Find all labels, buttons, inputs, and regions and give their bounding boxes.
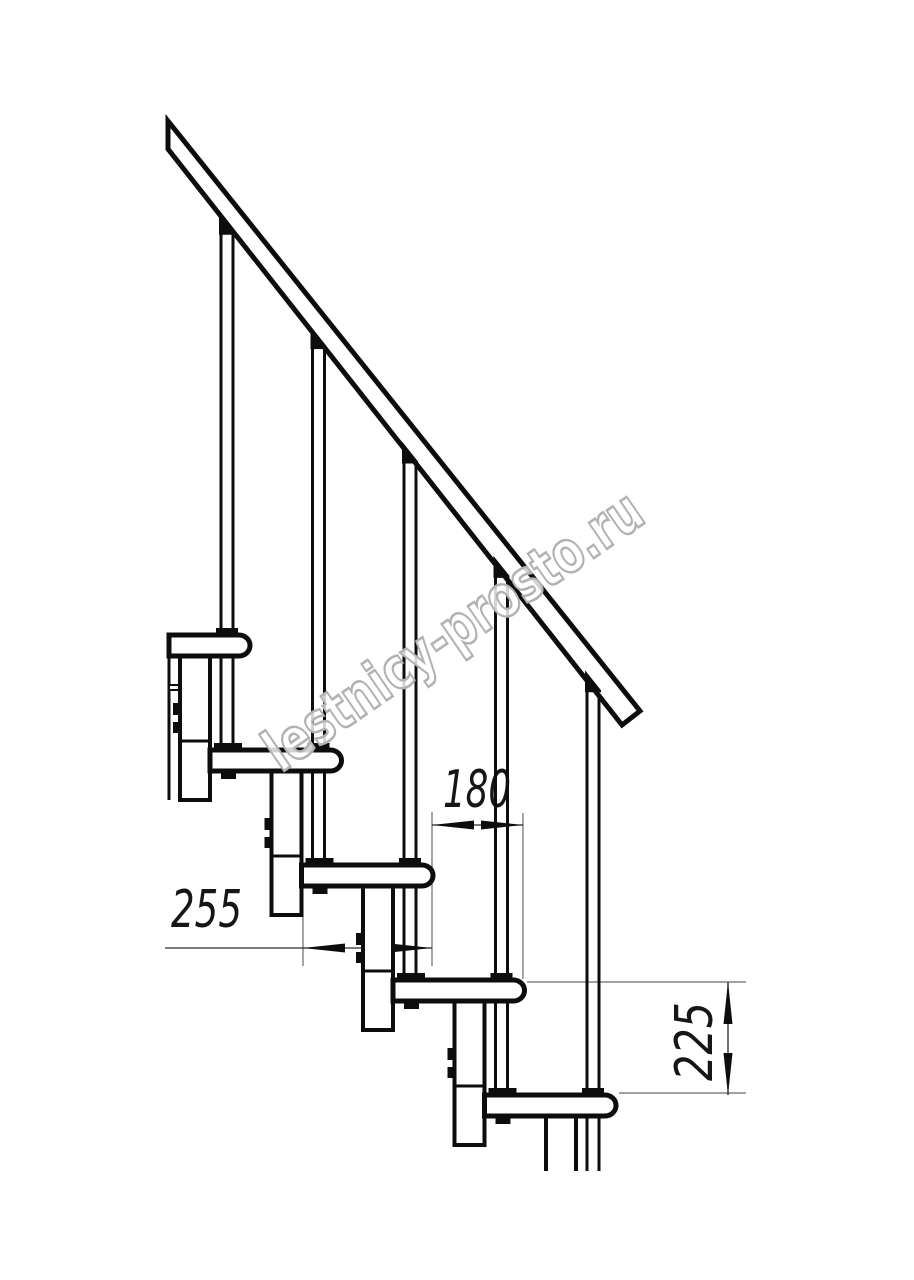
foot-collar xyxy=(214,743,242,750)
support-column xyxy=(265,771,302,915)
dimension-label-255: 255 xyxy=(171,880,242,940)
arrow-left-icon xyxy=(303,944,345,953)
baluster-post xyxy=(496,1001,508,1095)
tread xyxy=(302,865,434,886)
dimension-step-rise-225: 225 xyxy=(527,982,746,1095)
dimension-step-run-180: 180 xyxy=(432,760,523,979)
arrow-right-icon xyxy=(390,944,432,953)
baluster-post xyxy=(587,1116,599,1171)
connector-tab xyxy=(448,1067,455,1078)
baluster xyxy=(221,228,233,635)
nose-clamp xyxy=(491,973,513,980)
connector-tab xyxy=(265,837,272,848)
connector-tab xyxy=(173,722,180,733)
tread xyxy=(393,980,525,1001)
connector-tab xyxy=(265,818,272,830)
stair-technical-drawing: 255 180 225 xyxy=(0,0,914,1280)
arrow-right-icon xyxy=(481,821,523,830)
baluster-post xyxy=(404,886,416,980)
nose-clamp xyxy=(399,858,421,865)
foot-collar xyxy=(397,973,425,980)
connector-tab xyxy=(448,1048,455,1060)
support-column xyxy=(546,1116,576,1171)
nose-clamp xyxy=(582,1088,604,1095)
connector-tab xyxy=(356,952,363,963)
tread xyxy=(169,635,250,656)
arrow-left-icon xyxy=(432,821,474,830)
fixing-nut xyxy=(496,1116,511,1124)
support-column xyxy=(448,1001,485,1145)
drawing-canvas: 255 180 225 xyxy=(0,0,914,1280)
connector-tab xyxy=(173,703,180,715)
support-column xyxy=(356,886,393,1030)
baluster xyxy=(587,685,599,1095)
connector-tab xyxy=(356,933,363,945)
fixing-nut xyxy=(313,886,328,894)
tread xyxy=(485,1095,617,1116)
foot-collar xyxy=(489,1088,517,1095)
nose-clamp xyxy=(216,628,238,635)
support-column xyxy=(173,656,210,800)
foot-collar xyxy=(306,858,334,865)
baluster-post xyxy=(221,656,233,750)
dimension-label-225: 225 xyxy=(665,1002,725,1081)
fixing-nut xyxy=(221,771,236,779)
fixing-nut xyxy=(404,1001,419,1009)
dimension-label-180: 180 xyxy=(443,760,511,820)
baluster-post xyxy=(313,771,325,865)
